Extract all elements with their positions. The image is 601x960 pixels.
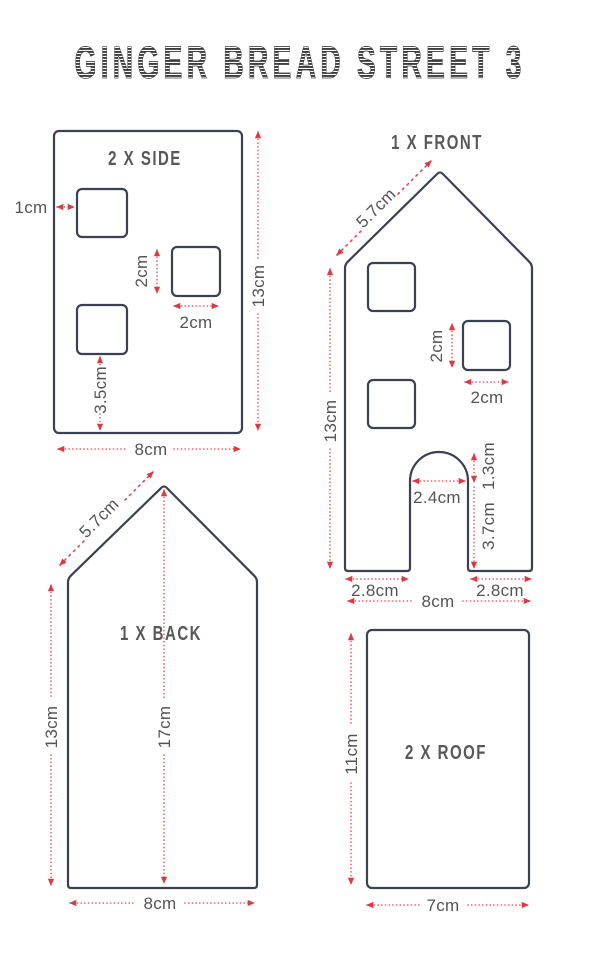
svg-text:2 X SIDE: 2 X SIDE <box>108 147 182 170</box>
svg-text:8cm: 8cm <box>143 894 176 913</box>
svg-text:1cm: 1cm <box>14 198 47 217</box>
svg-text:11cm: 11cm <box>342 733 361 775</box>
svg-text:3.7cm: 3.7cm <box>479 502 498 550</box>
svg-text:3.5cm: 3.5cm <box>91 366 110 414</box>
svg-text:17cm: 17cm <box>155 706 174 749</box>
svg-text:2.8cm: 2.8cm <box>351 581 399 600</box>
svg-text:2.4cm: 2.4cm <box>413 488 461 507</box>
svg-text:13cm: 13cm <box>42 706 61 749</box>
svg-text:2cm: 2cm <box>179 313 212 332</box>
svg-text:1.3cm: 1.3cm <box>479 442 498 490</box>
svg-text:2cm: 2cm <box>427 329 446 362</box>
svg-text:1 X BACK: 1 X BACK <box>120 622 202 645</box>
svg-text:2cm: 2cm <box>470 388 503 407</box>
svg-text:13cm: 13cm <box>249 265 268 308</box>
svg-text:GINGER BREAD STREET 3: GINGER BREAD STREET 3 <box>74 37 525 87</box>
svg-text:1 X FRONT: 1 X FRONT <box>391 131 483 154</box>
svg-text:2.8cm: 2.8cm <box>476 581 524 600</box>
svg-text:2cm: 2cm <box>132 254 151 287</box>
svg-text:7cm: 7cm <box>426 896 459 915</box>
svg-text:13cm: 13cm <box>321 400 340 443</box>
svg-text:2 X ROOF: 2 X ROOF <box>405 741 487 764</box>
svg-text:8cm: 8cm <box>134 440 167 459</box>
svg-text:8cm: 8cm <box>421 592 454 611</box>
